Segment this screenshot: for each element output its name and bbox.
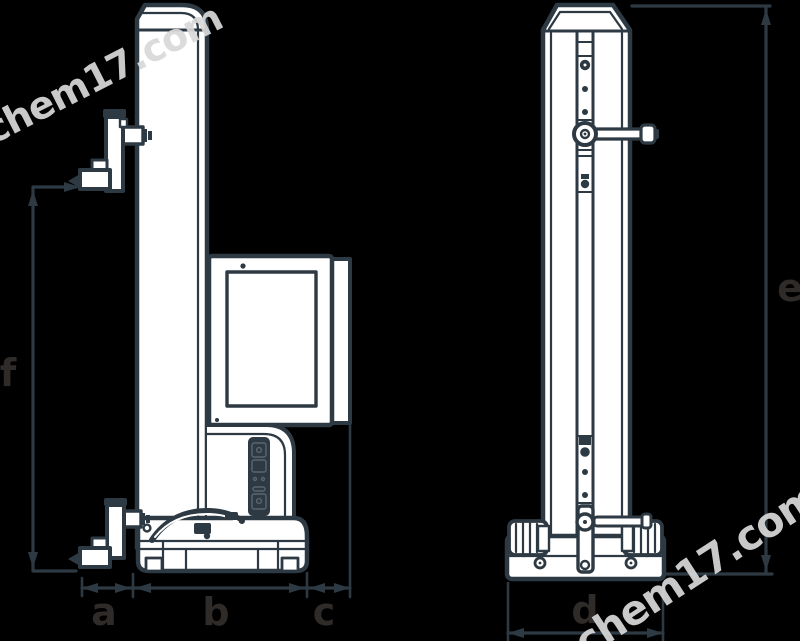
dim-label-b: b — [202, 593, 229, 631]
dim-label-e: e — [777, 269, 800, 307]
instrument-line-art — [0, 0, 800, 641]
dimension-drawing-canvas: a b c d e f chem17.com chem17.com — [0, 0, 800, 641]
dim-label-a: a — [91, 593, 117, 631]
right-view-front-drawing — [507, 5, 664, 579]
dim-label-f: f — [0, 354, 16, 392]
dim-label-c: c — [313, 593, 336, 631]
